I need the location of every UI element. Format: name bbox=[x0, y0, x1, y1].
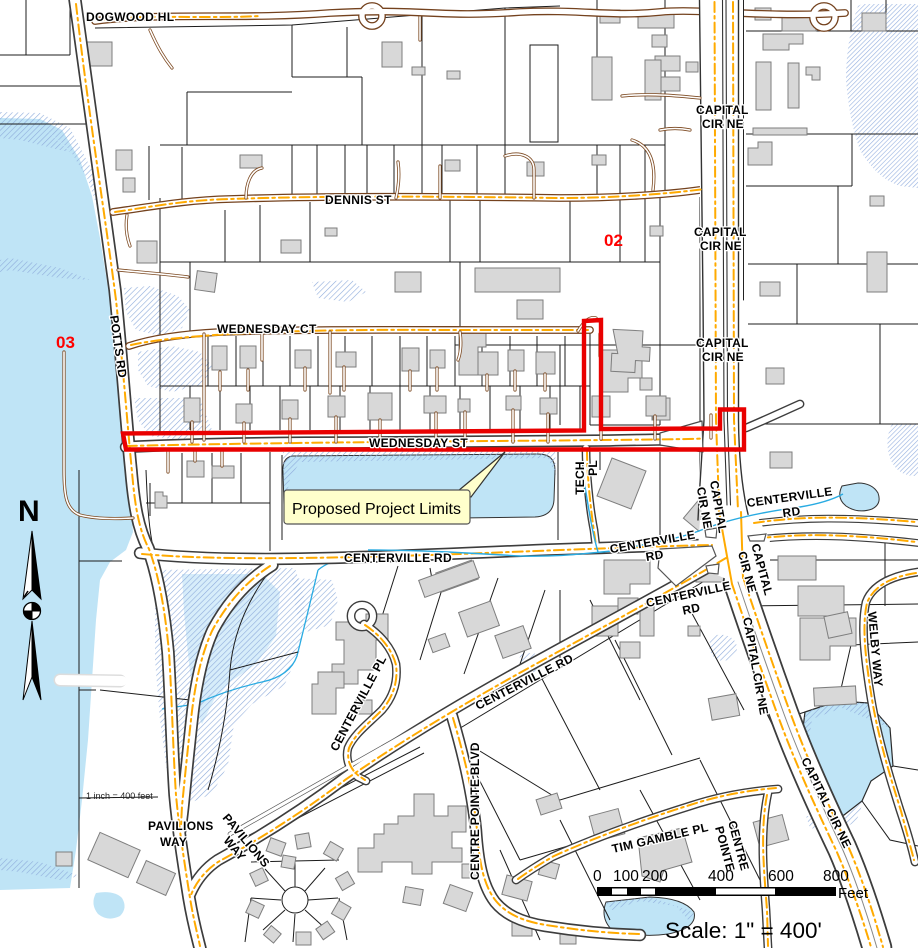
svg-text:DENNIS ST: DENNIS ST bbox=[325, 193, 392, 207]
svg-text:Proposed Project Limits: Proposed Project Limits bbox=[292, 501, 461, 518]
svg-text:CIR NE: CIR NE bbox=[702, 117, 744, 131]
svg-text:02: 02 bbox=[604, 231, 623, 250]
svg-text:PL: PL bbox=[586, 460, 600, 476]
svg-text:CIR NE: CIR NE bbox=[700, 239, 742, 253]
svg-text:CIR NE: CIR NE bbox=[702, 350, 744, 364]
svg-text:WAY: WAY bbox=[160, 835, 187, 849]
svg-text:CENTERVILLE RD: CENTERVILLE RD bbox=[344, 551, 452, 565]
svg-text:200: 200 bbox=[642, 868, 668, 885]
svg-text:CENTRE POINTE BLVD: CENTRE POINTE BLVD bbox=[468, 742, 482, 880]
svg-text:CAPITAL: CAPITAL bbox=[696, 336, 749, 350]
svg-text:CAPITAL: CAPITAL bbox=[696, 103, 749, 117]
svg-text:400: 400 bbox=[708, 868, 734, 885]
svg-text:600: 600 bbox=[768, 868, 794, 885]
svg-text:03: 03 bbox=[56, 333, 75, 352]
svg-text:TECH: TECH bbox=[573, 461, 587, 494]
svg-text:DOGWOOD HL: DOGWOOD HL bbox=[86, 10, 174, 24]
svg-text:800: 800 bbox=[823, 868, 849, 885]
svg-text:Scale: 1" = 400': Scale: 1" = 400' bbox=[665, 918, 822, 943]
svg-text:1 inch = 400 feet: 1 inch = 400 feet bbox=[86, 791, 153, 801]
svg-text:CAPITAL: CAPITAL bbox=[694, 225, 747, 239]
svg-text:N: N bbox=[18, 495, 40, 528]
svg-text:RD: RD bbox=[782, 504, 802, 520]
svg-text:100: 100 bbox=[613, 868, 639, 885]
svg-text:WEDNESDAY ST: WEDNESDAY ST bbox=[369, 436, 468, 450]
svg-text:PAVILIONS: PAVILIONS bbox=[148, 819, 214, 833]
svg-text:Feet: Feet bbox=[838, 885, 869, 902]
svg-text:WEDNESDAY CT: WEDNESDAY CT bbox=[217, 322, 317, 336]
svg-text:0: 0 bbox=[593, 868, 602, 885]
